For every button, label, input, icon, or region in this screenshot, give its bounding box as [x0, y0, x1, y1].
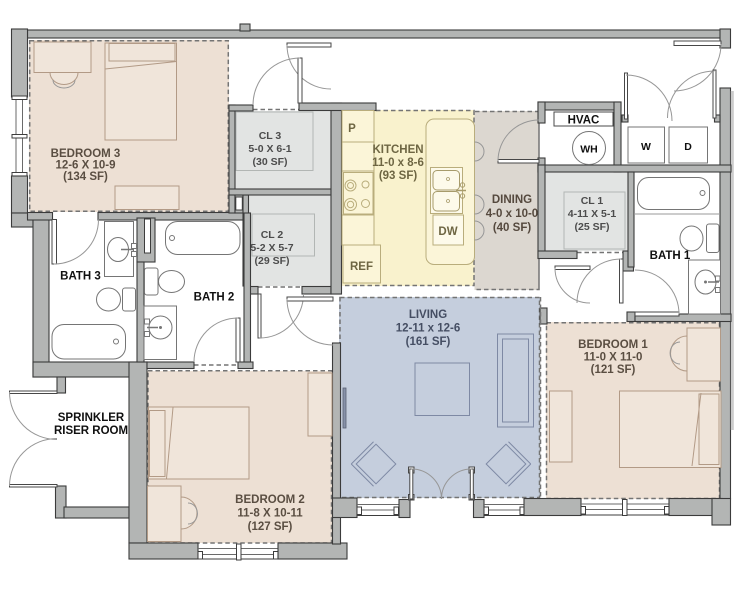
svg-text:CL 2: CL 2: [261, 229, 284, 241]
svg-text:4-0 x 10-0: 4-0 x 10-0: [486, 208, 538, 220]
svg-text:BATH 3: BATH 3: [60, 271, 101, 283]
svg-text:DINING: DINING: [492, 194, 532, 206]
svg-text:BATH 1: BATH 1: [650, 250, 691, 262]
svg-text:KITCHEN: KITCHEN: [372, 144, 423, 156]
svg-text:(127 SF): (127 SF): [248, 521, 293, 533]
svg-text:D: D: [684, 141, 692, 153]
svg-text:LIVING: LIVING: [409, 309, 447, 321]
svg-text:DW: DW: [438, 226, 457, 238]
svg-text:CL 1: CL 1: [581, 195, 604, 207]
svg-text:(121 SF): (121 SF): [591, 364, 636, 376]
svg-text:11-8 X 10-11: 11-8 X 10-11: [237, 508, 303, 520]
svg-text:(30 SF): (30 SF): [252, 156, 287, 168]
svg-text:(93 SF): (93 SF): [379, 170, 418, 182]
svg-text:(25 SF): (25 SF): [574, 221, 609, 233]
svg-text:REF: REF: [350, 261, 373, 273]
svg-text:BATH 2: BATH 2: [194, 292, 235, 304]
svg-text:(161 SF): (161 SF): [406, 336, 451, 348]
svg-text:11-0 x 8-6: 11-0 x 8-6: [372, 157, 424, 169]
svg-text:11-0 X 11-0: 11-0 X 11-0: [584, 352, 643, 364]
svg-text:12-11 x 12-6: 12-11 x 12-6: [396, 323, 461, 335]
svg-text:W: W: [641, 141, 651, 153]
svg-text:CL 3: CL 3: [259, 130, 282, 142]
svg-text:SPRINKLER: SPRINKLER: [58, 412, 125, 424]
svg-text:12-6 X 10-9: 12-6 X 10-9: [55, 160, 115, 172]
svg-text:RISER ROOM: RISER ROOM: [54, 425, 128, 437]
svg-text:HVAC: HVAC: [568, 115, 600, 127]
svg-text:(40 SF): (40 SF): [493, 222, 532, 234]
svg-text:5-2 X 5-7: 5-2 X 5-7: [250, 242, 293, 254]
svg-text:WH: WH: [580, 144, 598, 156]
svg-text:4-11 X 5-1: 4-11 X 5-1: [568, 208, 617, 220]
svg-text:BEDROOM 2: BEDROOM 2: [235, 494, 305, 506]
svg-text:P: P: [348, 123, 356, 135]
svg-text:BEDROOM 3: BEDROOM 3: [51, 148, 121, 160]
svg-text:(29 SF): (29 SF): [254, 255, 289, 267]
svg-text:BEDROOM 1: BEDROOM 1: [578, 339, 648, 351]
svg-text:5-0 X 6-1: 5-0 X 6-1: [248, 143, 291, 155]
svg-text:(134 SF): (134 SF): [63, 171, 108, 183]
